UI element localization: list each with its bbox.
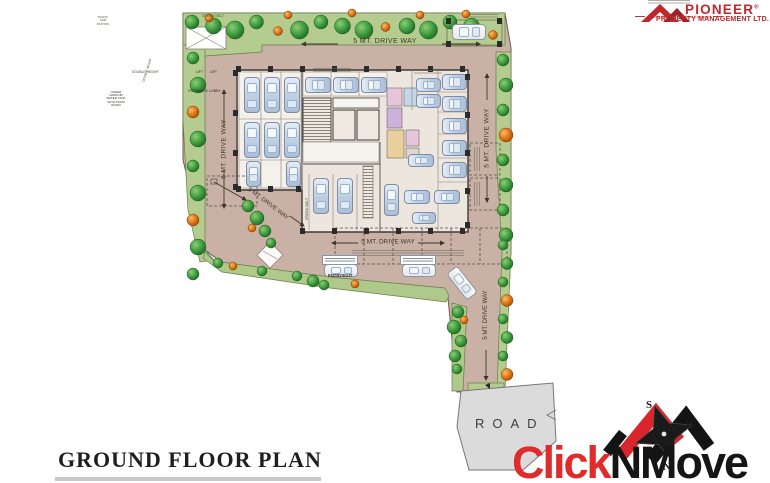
car-icon — [416, 78, 441, 92]
tree-icon — [399, 18, 415, 34]
clicknmove-part2: NMove — [610, 437, 748, 483]
tree-icon — [497, 54, 509, 66]
car-icon — [442, 96, 467, 112]
column-block — [460, 228, 465, 234]
car-icon — [402, 264, 436, 277]
car-icon — [452, 24, 486, 40]
tree-icon — [250, 15, 264, 29]
floor-plan-page: 5 MT. DRIVE WAY 5 MT. DRIVE WAY 5 MT. DR… — [0, 0, 770, 483]
car-icon — [442, 74, 467, 90]
car-icon — [246, 161, 261, 187]
tree-icon — [257, 266, 267, 276]
shrub-icon — [187, 106, 199, 118]
car-icon — [286, 161, 301, 187]
car-icon — [244, 122, 260, 158]
column-block — [233, 70, 238, 76]
shrub-icon — [499, 128, 513, 142]
micro-label — [322, 255, 358, 265]
tree-icon — [499, 78, 513, 92]
lift-label-2: LIFT — [208, 70, 220, 74]
driveway-label-bottom: 5 MT. DRIVE WAY — [361, 239, 414, 246]
tree-icon — [335, 18, 351, 34]
column-block — [268, 186, 273, 192]
car-icon — [244, 77, 260, 113]
tree-icon — [291, 21, 309, 39]
column-block — [396, 228, 401, 234]
car-icon — [337, 178, 353, 214]
page-title: GROUND FLOOR PLAN — [58, 447, 322, 473]
driveway-label-exit: 5 MT. DRIVE WAY — [483, 290, 489, 339]
tree-icon — [501, 332, 513, 344]
car-icon — [442, 140, 467, 156]
driveway-label-left: 5 MT. DRIVE WAY — [221, 119, 228, 178]
shrub-icon — [229, 262, 237, 270]
car-icon — [408, 154, 434, 167]
car-icon — [264, 77, 280, 113]
shrub-icon — [248, 224, 256, 232]
tree-icon — [501, 258, 513, 270]
water-tank-label: UNDER GROUND WATER TANK WITH PUMP ROOM — [105, 91, 128, 108]
column-block — [465, 112, 470, 118]
column-block — [233, 150, 238, 156]
column-block — [465, 222, 470, 228]
compass-south: S — [646, 399, 652, 411]
tree-icon — [497, 204, 509, 216]
tree-icon — [226, 21, 244, 39]
pioneer-tagline: An ISO 9001:2015 Certified Company — [643, 15, 715, 19]
micro-label — [414, 70, 442, 75]
column-block — [497, 41, 502, 47]
car-icon — [442, 162, 467, 178]
entrance-lobby-label: ENTRANCE LOBBY — [182, 89, 228, 93]
entry-exit-label: ENTRY/EXIT — [325, 273, 356, 278]
car-icon — [284, 122, 300, 158]
tree-icon — [314, 15, 328, 29]
compass-north: N — [663, 461, 671, 473]
tree-icon — [499, 228, 513, 242]
column-block — [465, 150, 470, 156]
tree-icon — [319, 280, 329, 290]
shrub-icon — [351, 280, 359, 288]
micro-label — [474, 182, 481, 206]
tree-icon — [190, 185, 206, 201]
column-block — [332, 228, 337, 234]
tree-icon — [187, 268, 199, 280]
tree-icon — [185, 15, 199, 29]
column-block — [465, 188, 470, 194]
column-block — [364, 228, 369, 234]
tree-icon — [498, 314, 508, 324]
tree-icon — [187, 52, 199, 64]
road-label: ROAD — [475, 416, 545, 431]
tree-icon — [190, 131, 206, 147]
car-icon — [333, 77, 359, 93]
pioneer-logo: PIONEER® PROPERTY MANAGEMENT LTD. An ISO… — [628, 0, 770, 32]
car-icon — [313, 178, 329, 214]
substation-label: TRANS. SUB STATION — [95, 16, 112, 26]
tree-icon — [499, 178, 513, 192]
micro-label — [400, 255, 436, 265]
compass-west: W — [685, 419, 696, 431]
shrub-icon — [489, 31, 498, 40]
green-belt-label-right: GREEN BELT — [305, 198, 309, 221]
shrub-icon — [274, 27, 283, 36]
tree-icon — [420, 21, 438, 39]
car-icon — [284, 77, 300, 113]
tree-icon — [498, 277, 508, 287]
shrub-icon — [187, 214, 199, 226]
column-block — [300, 228, 305, 234]
micro-label — [313, 68, 351, 73]
car-icon — [412, 212, 436, 224]
shrub-icon — [501, 295, 513, 307]
car-icon — [384, 184, 399, 216]
micro-label — [470, 14, 498, 19]
column-block — [396, 66, 401, 72]
shrub-icon — [348, 9, 356, 17]
car-icon — [361, 77, 387, 93]
clicknmove-logo: ClickNMove — [512, 437, 747, 483]
column-block — [446, 41, 451, 47]
shrub-icon — [501, 369, 513, 381]
lift-label-1: LIFT — [194, 70, 206, 74]
tree-icon — [452, 364, 462, 374]
title-underline — [55, 477, 321, 481]
tree-icon — [307, 275, 319, 287]
tree-icon — [455, 335, 467, 347]
column-block — [428, 228, 433, 234]
driveway-label-right: 5 MT. DRIVE WAY — [484, 108, 491, 167]
tree-icon — [259, 225, 271, 237]
car-icon — [434, 190, 460, 204]
car-icon — [404, 190, 430, 204]
clicknmove-part1: Click — [512, 437, 610, 483]
micro-label — [474, 147, 481, 171]
tree-icon — [213, 258, 223, 268]
driveway-label-top: 5 MT. DRIVE WAY — [330, 38, 440, 45]
car-icon — [305, 77, 331, 93]
tree-icon — [497, 104, 509, 116]
tree-icon — [449, 350, 461, 362]
tree-icon — [266, 238, 276, 248]
tree-icon — [292, 271, 302, 281]
column-block — [233, 110, 238, 116]
tree-icon — [447, 320, 461, 334]
column-block — [296, 186, 301, 192]
registered-mark: ® — [754, 5, 760, 11]
tree-icon — [242, 200, 254, 212]
column-block — [465, 74, 470, 80]
car-icon — [264, 122, 280, 158]
shrub-icon — [462, 10, 470, 18]
tree-icon — [355, 21, 373, 39]
green-belt-label-top: GREEN BELT — [202, 14, 225, 18]
tree-icon — [190, 239, 206, 255]
tree-icon — [250, 211, 264, 225]
column-block — [300, 66, 305, 72]
column-block — [364, 66, 369, 72]
tree-icon — [498, 240, 508, 250]
car-icon — [442, 118, 467, 134]
shrub-icon — [416, 11, 424, 19]
column-block — [460, 66, 465, 72]
column-block — [268, 66, 273, 72]
column-block — [446, 18, 451, 24]
column-block — [236, 186, 241, 192]
tree-icon — [497, 154, 509, 166]
car-icon — [416, 94, 441, 108]
tree-icon — [498, 351, 508, 361]
shrub-icon — [460, 316, 468, 324]
compass-center — [662, 432, 667, 437]
shrub-icon — [284, 11, 292, 19]
tree-icon — [187, 160, 199, 172]
shrub-icon — [381, 23, 390, 32]
